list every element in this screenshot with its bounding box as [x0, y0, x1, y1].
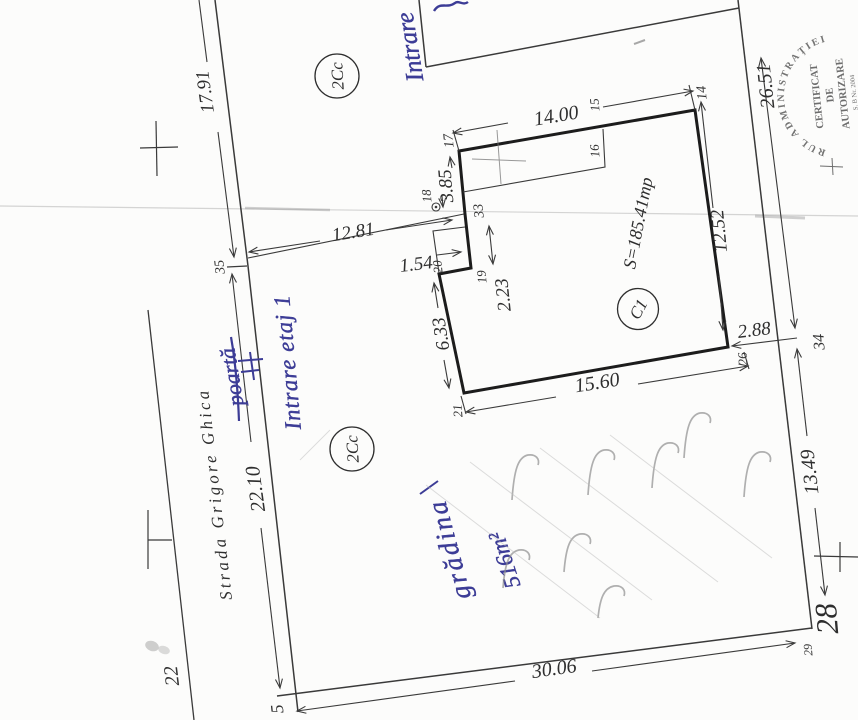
svg-text:17: 17: [441, 132, 457, 148]
svg-text:3.85: 3.85: [435, 168, 459, 204]
svg-text:26: 26: [734, 351, 750, 366]
svg-text:2Cc: 2Cc: [342, 434, 362, 463]
svg-text:12.52: 12.52: [707, 208, 732, 253]
svg-text:19: 19: [473, 269, 489, 284]
svg-text:21: 21: [449, 404, 465, 418]
svg-text:14: 14: [694, 85, 710, 100]
svg-text:2Cc: 2Cc: [327, 61, 347, 90]
svg-text:28: 28: [808, 601, 846, 635]
svg-text:16: 16: [586, 143, 602, 158]
svg-text:29: 29: [800, 643, 815, 656]
svg-text:34: 34: [810, 333, 828, 351]
svg-text:18: 18: [418, 188, 434, 203]
svg-text:33: 33: [471, 203, 487, 219]
svg-text:20: 20: [429, 259, 445, 274]
svg-text:26.51: 26.51: [753, 62, 780, 109]
svg-text:2.23: 2.23: [491, 277, 515, 312]
svg-text:22: 22: [160, 665, 184, 688]
svg-text:2.88: 2.88: [736, 318, 772, 343]
svg-text:15: 15: [586, 97, 602, 112]
svg-text:35: 35: [212, 259, 228, 275]
svg-text:DE: DE: [824, 87, 836, 103]
